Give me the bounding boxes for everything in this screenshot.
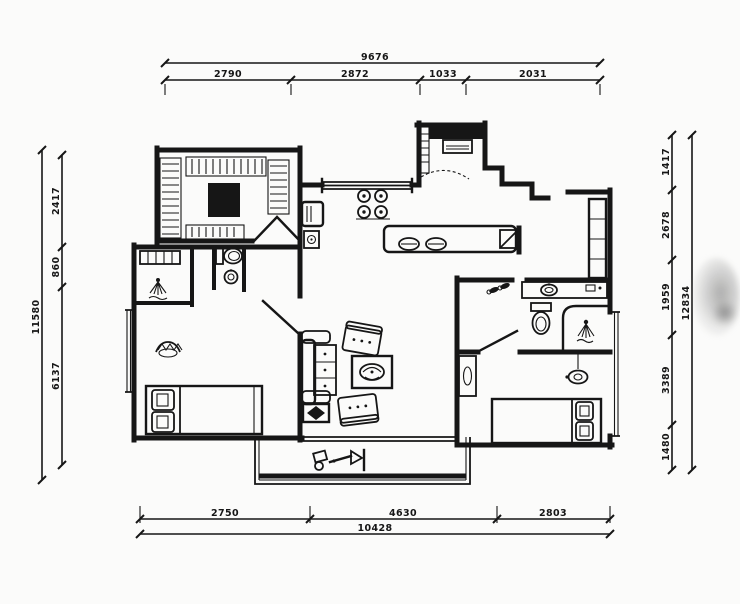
dim-top-segment: 1033 (429, 69, 457, 80)
dimension-chain-top: 9676 2790 2872 1033 2031 (161, 52, 604, 95)
pillow-icon (576, 402, 593, 420)
dining-plates-icon (399, 238, 446, 250)
floor-plan-canvas: 9676 2790 2872 1033 2031 2750 4630 2803 … (0, 0, 740, 600)
dim-bottom-segment: 2750 (211, 508, 239, 519)
pillow-icon (152, 390, 174, 410)
dim-left-segment: 2417 (51, 187, 62, 215)
dim-right-segment: 1959 (661, 283, 672, 311)
dim-top-total: 9676 (361, 52, 389, 63)
right-bedroom-door-leaf-icon (479, 331, 517, 351)
side-table-icon (303, 404, 329, 422)
dim-left-segment: 860 (51, 256, 62, 277)
dim-top-segment: 2872 (341, 69, 369, 80)
dim-bottom-total: 10428 (357, 523, 392, 534)
bathroom-vanity (522, 282, 607, 298)
fridge-icon (302, 202, 323, 226)
dim-right-segment: 1480 (661, 433, 672, 461)
washing-machine-icon (443, 140, 472, 153)
cloakroom-double-door-icon (254, 217, 300, 241)
sofa-icon (302, 331, 336, 404)
dim-right-segment: 2678 (661, 211, 672, 239)
left-bedroom-door-leaf-icon (263, 301, 299, 334)
dim-bottom-segment: 4630 (389, 508, 417, 519)
south-balcony-glazing (255, 437, 470, 484)
dimension-chain-right: 1417 2678 1959 3389 1480 12834 (661, 131, 696, 474)
floor-plan-drawing: 9676 2790 2872 1033 2031 2750 4630 2803 … (0, 0, 740, 600)
stove-icon (356, 189, 390, 219)
dim-right-segment: 3389 (661, 366, 672, 394)
toilet-icon-ensuite (216, 248, 242, 264)
sliding-door-arc-icon (421, 170, 469, 179)
bed-icon-left (146, 386, 262, 434)
dim-left-segment: 6137 (51, 362, 62, 390)
plant-icon-left-bedroom (156, 342, 182, 357)
pedestal-sink-icon (225, 269, 238, 283)
dim-left-total: 11580 (31, 299, 42, 334)
coffee-table-icon (352, 356, 392, 388)
plant-icon (360, 364, 384, 380)
armchair-icon-bottom (338, 394, 379, 426)
right-bedroom-window (612, 312, 620, 436)
dim-right-segment: 1417 (661, 148, 672, 176)
pillow-icon (152, 412, 174, 432)
shower-stall-right (563, 306, 608, 352)
slippers-icon (487, 282, 511, 295)
balcony-equipment-icon (313, 450, 364, 470)
ceiling-lamp-icon-right (565, 352, 587, 384)
water-heater-icon (304, 231, 319, 248)
shower-spray-icon (149, 278, 167, 300)
dim-top-segment: 2031 (519, 69, 547, 80)
dim-bottom-segment: 2803 (539, 508, 567, 519)
ensuite-partition-walls (134, 247, 244, 305)
dim-top-segment: 2790 (214, 69, 242, 80)
toilet-icon-right-bath (531, 303, 551, 334)
tv-cabinet-icon (459, 356, 476, 396)
dimension-chain-bottom: 2750 4630 2803 10428 (136, 506, 614, 538)
dim-right-total: 12834 (681, 285, 692, 320)
armchair-icon-top (342, 321, 382, 356)
dining-counter (384, 226, 516, 252)
pillow-icon (576, 422, 593, 440)
vanity-sink-icon (541, 283, 557, 295)
dimension-chain-left: 11580 2417 860 6137 (31, 146, 66, 484)
shower-spray-icon (577, 320, 594, 343)
bed-icon-right (492, 399, 601, 443)
ensuite-shower (140, 251, 180, 300)
service-balcony (421, 126, 483, 179)
counter-dark-band (429, 126, 483, 139)
closet-island-icon (208, 183, 240, 217)
tall-cabinet-icon (589, 199, 606, 278)
